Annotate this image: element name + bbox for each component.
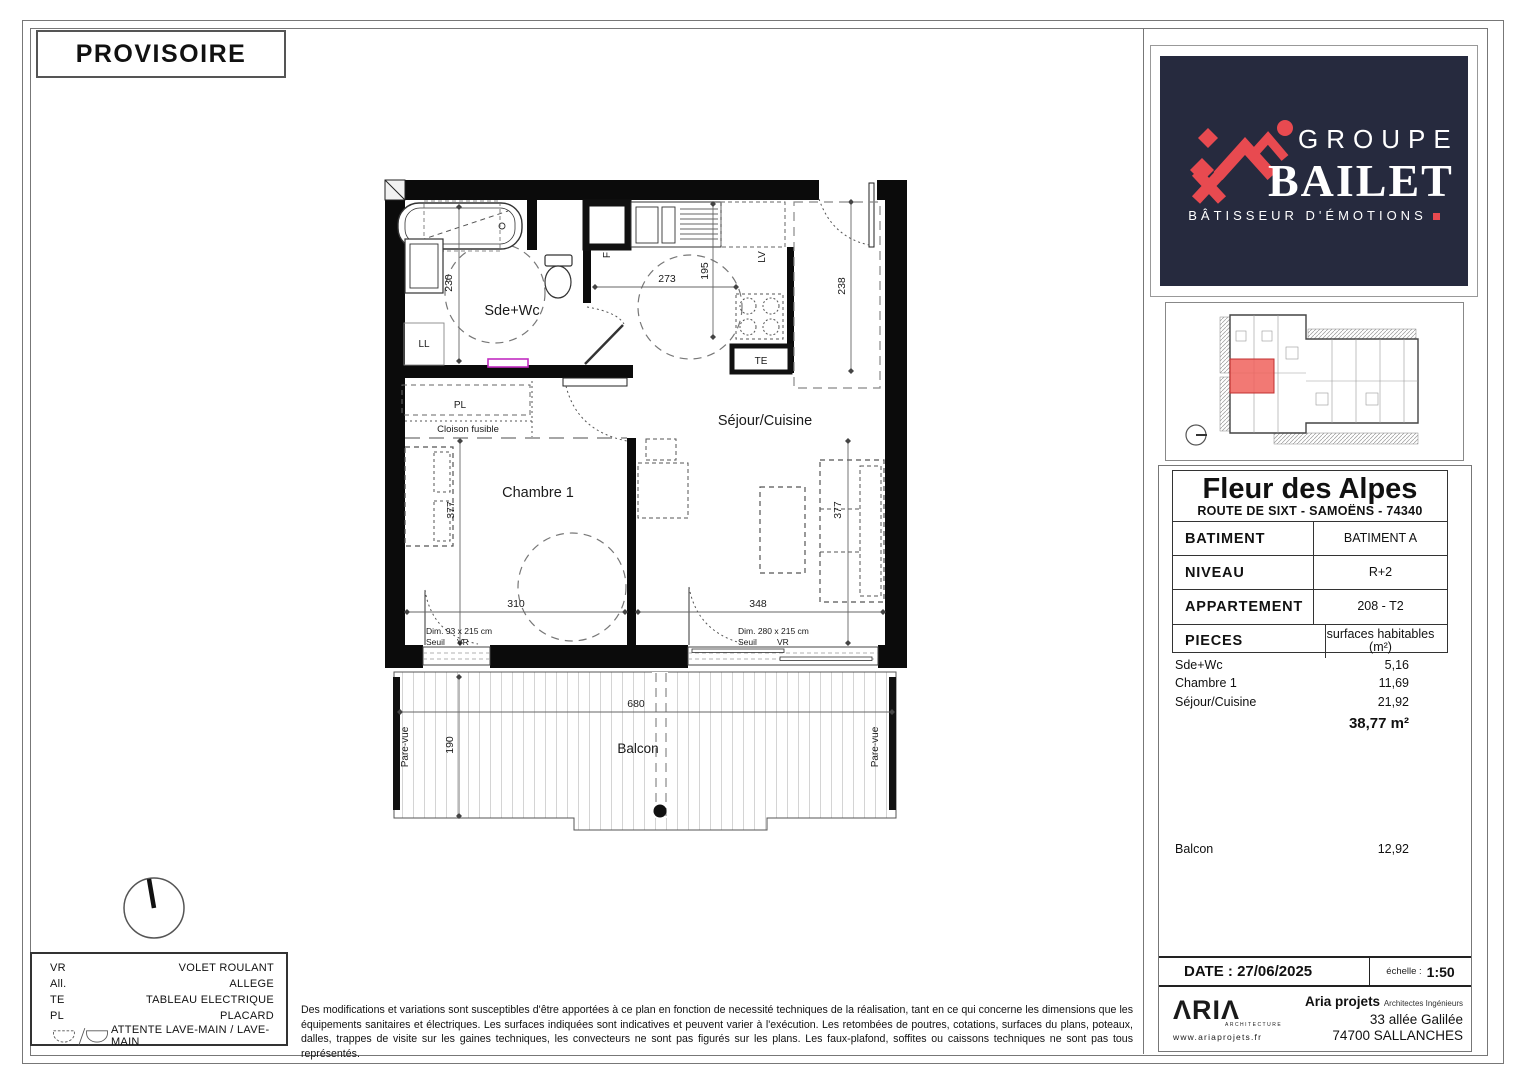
legend-label: TABLEAU ELECTRIQUE — [146, 994, 274, 1006]
aria-logo-text: ΛRIΛ — [1173, 995, 1240, 1025]
balcony-area: Pare-vue Pare-vue 680 190 Balcon — [393, 672, 896, 830]
aria-logo: ΛRIΛ ARCHITECTURE www.ariaprojets.fr — [1159, 989, 1293, 1049]
legend-row: PL PLACARD — [50, 1008, 274, 1024]
info-row-appartement: APPARTEMENT 208 - T2 — [1173, 589, 1447, 623]
brand-red-square — [1433, 213, 1440, 220]
window-bedroom-seuil: Seuil — [426, 637, 445, 647]
apartment-info-card: Fleur des Alpes ROUTE DE SIXT - SAMOËNS … — [1158, 465, 1472, 1052]
architect-block: ΛRIΛ ARCHITECTURE www.ariaprojets.fr Ari… — [1159, 989, 1471, 1049]
tag-washing-machine: LL — [418, 339, 430, 350]
dim-balcony-width: 680 — [627, 698, 645, 710]
legend-box: VR VOLET ROULANT All. ALLEGE TE TABLEAU … — [30, 952, 288, 1046]
north-compass-icon — [114, 866, 194, 946]
brand-logo-card: GROUPE BAILET BÂTISSEUR D'ÉMOTIONS — [1150, 45, 1478, 297]
legend-abbr: PL — [50, 1010, 64, 1022]
scale-value: 1:50 — [1427, 964, 1455, 980]
area-row-bedroom: Chambre 1 11,69 — [1175, 676, 1415, 690]
legend-label: PLACARD — [220, 1010, 274, 1022]
brand-tagline: BÂTISSEUR D'ÉMOTIONS — [1160, 208, 1468, 223]
window-bedroom-vr: VR — [457, 637, 469, 647]
info-row-batiment: BATIMENT BATIMENT A — [1173, 521, 1447, 555]
tag-dishwasher: LV — [757, 251, 768, 263]
washbasin — [405, 239, 443, 293]
dining-table — [760, 487, 805, 573]
architect-addr2: 74700 SALLANCHES — [1293, 1028, 1463, 1044]
sofa — [820, 460, 884, 602]
date-value: 27/06/2025 — [1237, 963, 1312, 980]
brand-bailet: BAILET — [1268, 154, 1454, 207]
tag-fridge: F — [602, 252, 613, 258]
date-scale-bar: DATE : 27/06/2025 échelle : 1:50 — [1159, 956, 1471, 987]
dim-living-depth: 377 — [832, 501, 844, 519]
info-row-niveau: NIVEAU R+2 — [1173, 555, 1447, 589]
legend-row: All. ALLEGE — [50, 976, 274, 992]
tag-cloison: Cloison fusible — [437, 424, 499, 435]
highlighted-apartment — [1230, 359, 1274, 393]
dim-bedroom-depth: 377 — [445, 501, 457, 519]
room-label-bath: Sde+Wc — [484, 303, 539, 319]
room-label-bedroom: Chambre 1 — [502, 485, 574, 501]
pare-vue-screen-left — [393, 677, 400, 810]
info-row-pieces: PIECES surfaces habitables (m²) — [1173, 624, 1447, 658]
legend-label: VOLET ROULANT — [179, 962, 274, 974]
dim-entry: 238 — [836, 277, 848, 295]
area-row-balcony: Balcon 12,92 — [1175, 842, 1415, 856]
aria-logo-url: www.ariaprojets.fr — [1173, 1032, 1262, 1042]
cooktop — [736, 294, 783, 339]
dim-bath: 230 — [443, 274, 455, 292]
room-label-living: Séjour/Cuisine — [718, 413, 812, 429]
provisoire-label: PROVISOIRE — [76, 40, 247, 69]
pare-vue-label-right: Pare-vue — [870, 726, 881, 767]
legend-label: ATTENTE LAVE-MAIN / LAVE-MAIN — [111, 1024, 274, 1048]
window-living-vr: VR — [777, 637, 789, 647]
brand-logo-background: GROUPE BAILET BÂTISSEUR D'ÉMOTIONS — [1160, 56, 1468, 286]
project-title-box: Fleur des Alpes ROUTE DE SIXT - SAMOËNS … — [1172, 470, 1448, 653]
provisoire-stamp: PROVISOIRE — [36, 30, 286, 78]
dim-balcony-depth: 190 — [444, 736, 456, 754]
plan-sheet: PROVISOIRE Pare-vue Pare-vue 680 190 — [0, 0, 1528, 1080]
disclaimer-text: Des modifications et variations sont sus… — [301, 1003, 1133, 1061]
scale-field: échelle : 1:50 — [1369, 958, 1471, 985]
scale-label: échelle : — [1386, 966, 1421, 977]
legend-label: ALLEGE — [229, 978, 274, 990]
bedroom-door-leaf — [563, 378, 627, 386]
pare-vue-screen-right — [889, 677, 896, 810]
date-label: DATE : — [1184, 963, 1233, 980]
legend-row: VR VOLET ROULANT — [50, 960, 274, 976]
window-living-seuil: Seuil — [738, 637, 757, 647]
legend-abbr: VR — [50, 962, 66, 974]
aria-logo-sub: ARCHITECTURE — [1225, 1022, 1282, 1028]
window-bedroom-dim: Dim. 93 x 215 cm — [426, 626, 492, 636]
project-address: ROUTE DE SIXT - SAMOËNS - 74340 — [1173, 504, 1447, 518]
window-living-dim: Dim. 280 x 215 cm — [738, 626, 809, 636]
dim-living-width: 348 — [749, 598, 767, 610]
sink-icon — [50, 1023, 111, 1049]
dim-bedroom-width: 310 — [507, 598, 525, 610]
bed — [405, 447, 453, 546]
building-overview-card — [1165, 302, 1464, 461]
lave-main-marker — [488, 359, 528, 367]
entry-door-leaf — [869, 183, 874, 247]
architect-name: Aria projets — [1305, 994, 1380, 1009]
balcony-drain — [654, 805, 667, 818]
bath-door-leaf — [585, 325, 623, 364]
duct-shaft — [586, 203, 628, 247]
architect-address: Aria projets Architectes Ingénieurs 33 a… — [1293, 989, 1471, 1049]
area-total: 38,77 m² — [1309, 715, 1409, 732]
dim-kitchen-width: 273 — [658, 273, 676, 285]
legend-abbr: TE — [50, 994, 65, 1006]
area-row-bath: Sde+Wc 5,16 — [1175, 658, 1415, 672]
brand-groupe: GROUPE — [1298, 124, 1459, 155]
electric-panel-label: TE — [755, 356, 768, 367]
aria-logo-icon: ΛRIΛ ARCHITECTURE www.ariaprojets.fr — [1173, 993, 1283, 1045]
floor-plan: Pare-vue Pare-vue 680 190 Balcon — [380, 175, 915, 855]
legend-abbr: All. — [50, 978, 66, 990]
pare-vue-label-left: Pare-vue — [400, 726, 411, 767]
panel-divider — [1143, 28, 1144, 1054]
project-title: Fleur des Alpes — [1173, 474, 1447, 504]
toilet-tank — [545, 255, 572, 266]
architect-addr1: 33 allée Galilée — [1293, 1012, 1463, 1028]
architect-role: Architectes Ingénieurs — [1384, 999, 1463, 1008]
tag-placard: PL — [454, 400, 467, 411]
dim-kitchen-depth: 195 — [699, 262, 711, 280]
legend-row: TE TABLEAU ELECTRIQUE — [50, 992, 274, 1008]
legend-row: ATTENTE LAVE-MAIN / LAVE-MAIN — [50, 1024, 274, 1048]
room-label-balcony: Balcon — [617, 741, 658, 756]
toilet — [545, 266, 571, 298]
building-overview-plan — [1166, 303, 1461, 458]
date-field: DATE : 27/06/2025 — [1159, 958, 1369, 985]
area-row-living: Séjour/Cuisine 21,92 — [1175, 695, 1415, 709]
